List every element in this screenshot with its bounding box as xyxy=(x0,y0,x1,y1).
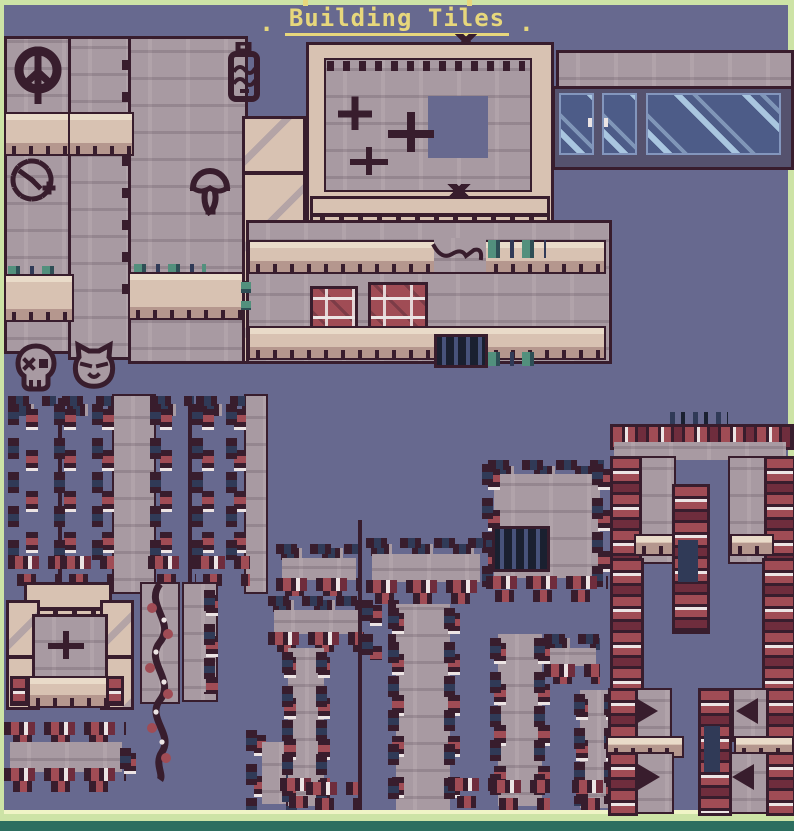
long-wall-bottom-ledge xyxy=(248,326,606,360)
branch-fringe-bottom xyxy=(544,664,600,684)
brick-accent xyxy=(106,676,124,706)
pipe-cross-mark xyxy=(388,112,434,152)
vine-fringe xyxy=(92,404,114,560)
glass-window-pane xyxy=(646,93,781,155)
branch-fringe-bottom xyxy=(276,578,362,596)
vent-grate xyxy=(434,334,488,368)
trunk-vine-edge xyxy=(388,608,404,806)
vine-fringe xyxy=(192,404,214,560)
exposed-brick-patch xyxy=(310,286,358,330)
pipe-cross-mark xyxy=(350,146,388,176)
page-title: Building Tiles xyxy=(289,5,505,31)
branch-core xyxy=(274,610,358,634)
vine-curl xyxy=(120,748,136,778)
frame-hole xyxy=(428,96,488,158)
canopy-flower-bottom xyxy=(486,576,608,602)
brick-accent xyxy=(10,676,28,706)
corner-notch xyxy=(636,698,658,724)
winding-vine xyxy=(134,582,186,782)
trunk-vine-edge xyxy=(444,608,460,806)
column-dark-section xyxy=(678,540,698,582)
title-left-dot: . xyxy=(259,10,274,36)
trunk-base-flowers xyxy=(490,780,550,810)
branch-core xyxy=(282,558,356,580)
canopy-core xyxy=(372,554,480,582)
exposed-brick-patch xyxy=(368,282,428,330)
wall-ledge xyxy=(4,274,74,322)
peace-sign-icon xyxy=(12,42,64,104)
arch-inner-ledge xyxy=(730,534,774,556)
title-tick xyxy=(303,0,308,6)
stone-frame-sill xyxy=(28,676,110,708)
flower-fringe-bottom xyxy=(4,768,126,792)
vine-fringe xyxy=(204,590,218,694)
canopy-flower-bottom xyxy=(366,580,486,604)
corner-notch xyxy=(638,764,660,790)
frame-inner-teeth xyxy=(327,61,525,71)
vine-fringe xyxy=(54,404,76,560)
pipe-cross-mark xyxy=(48,630,84,660)
corner-brick-edge xyxy=(608,752,638,816)
pipe-cross-mark xyxy=(338,96,372,130)
corner-notch xyxy=(736,698,758,724)
vine-fringe xyxy=(150,404,172,560)
corner-notch xyxy=(732,764,754,790)
long-wall-top-ledge xyxy=(248,240,606,274)
title-tick xyxy=(467,0,472,6)
cat-face-icon xyxy=(70,340,118,394)
spray-can-icon xyxy=(222,42,266,102)
base-bush xyxy=(306,782,358,810)
moss-clump xyxy=(241,282,251,310)
wall-ledge xyxy=(4,112,74,156)
vine-curl xyxy=(362,600,382,660)
tree-trunk-large xyxy=(396,604,450,810)
moss-clump xyxy=(488,240,546,258)
arch-side-column xyxy=(610,558,644,700)
tileset-sheet: . Building Tiles . xyxy=(0,0,794,831)
door-handle xyxy=(588,118,592,127)
mushroom-cloud-icon xyxy=(186,158,234,216)
wall-ledge xyxy=(68,112,134,156)
crack-and-hook xyxy=(430,240,490,276)
moss-clump xyxy=(488,352,542,366)
clock-face-icon xyxy=(8,154,58,212)
column-dark-section xyxy=(704,726,720,772)
wall-ledge xyxy=(128,272,246,320)
door-handle xyxy=(604,118,608,127)
title-right-dot: . xyxy=(519,10,534,36)
sheet-title-row: . Building Tiles . xyxy=(0,2,794,36)
vine-fringe xyxy=(8,404,38,560)
corner-brick-edge xyxy=(766,752,794,816)
base-bush xyxy=(448,778,494,808)
vine-fringe xyxy=(226,404,246,560)
metal-grate xyxy=(492,526,550,572)
arch-side-column xyxy=(762,558,794,700)
skull-icon xyxy=(12,342,60,394)
tile-divider xyxy=(358,520,362,810)
canopy-vine-edge xyxy=(592,464,610,592)
border-bottom-teal-line xyxy=(0,821,794,831)
